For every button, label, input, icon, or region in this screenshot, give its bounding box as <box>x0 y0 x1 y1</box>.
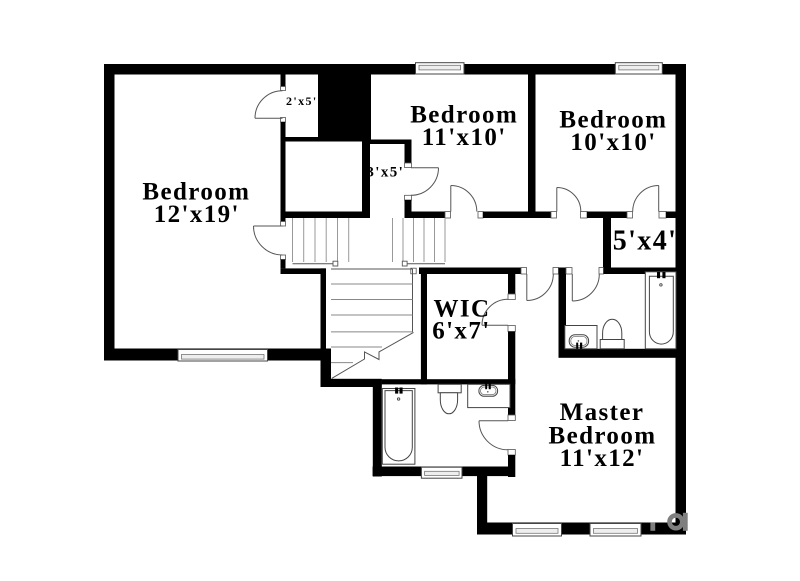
svg-text:11'x12': 11'x12' <box>560 445 645 472</box>
svg-text:12'x19': 12'x19' <box>154 201 240 228</box>
svg-text:10'x10': 10'x10' <box>570 129 656 156</box>
svg-text:6'x7': 6'x7' <box>432 318 490 345</box>
svg-text:2'x5': 2'x5' <box>286 94 318 108</box>
svg-text:3'x5': 3'x5' <box>366 164 404 180</box>
svg-text:11'x10': 11'x10' <box>422 124 507 151</box>
svg-text:5'x4': 5'x4' <box>613 226 678 257</box>
